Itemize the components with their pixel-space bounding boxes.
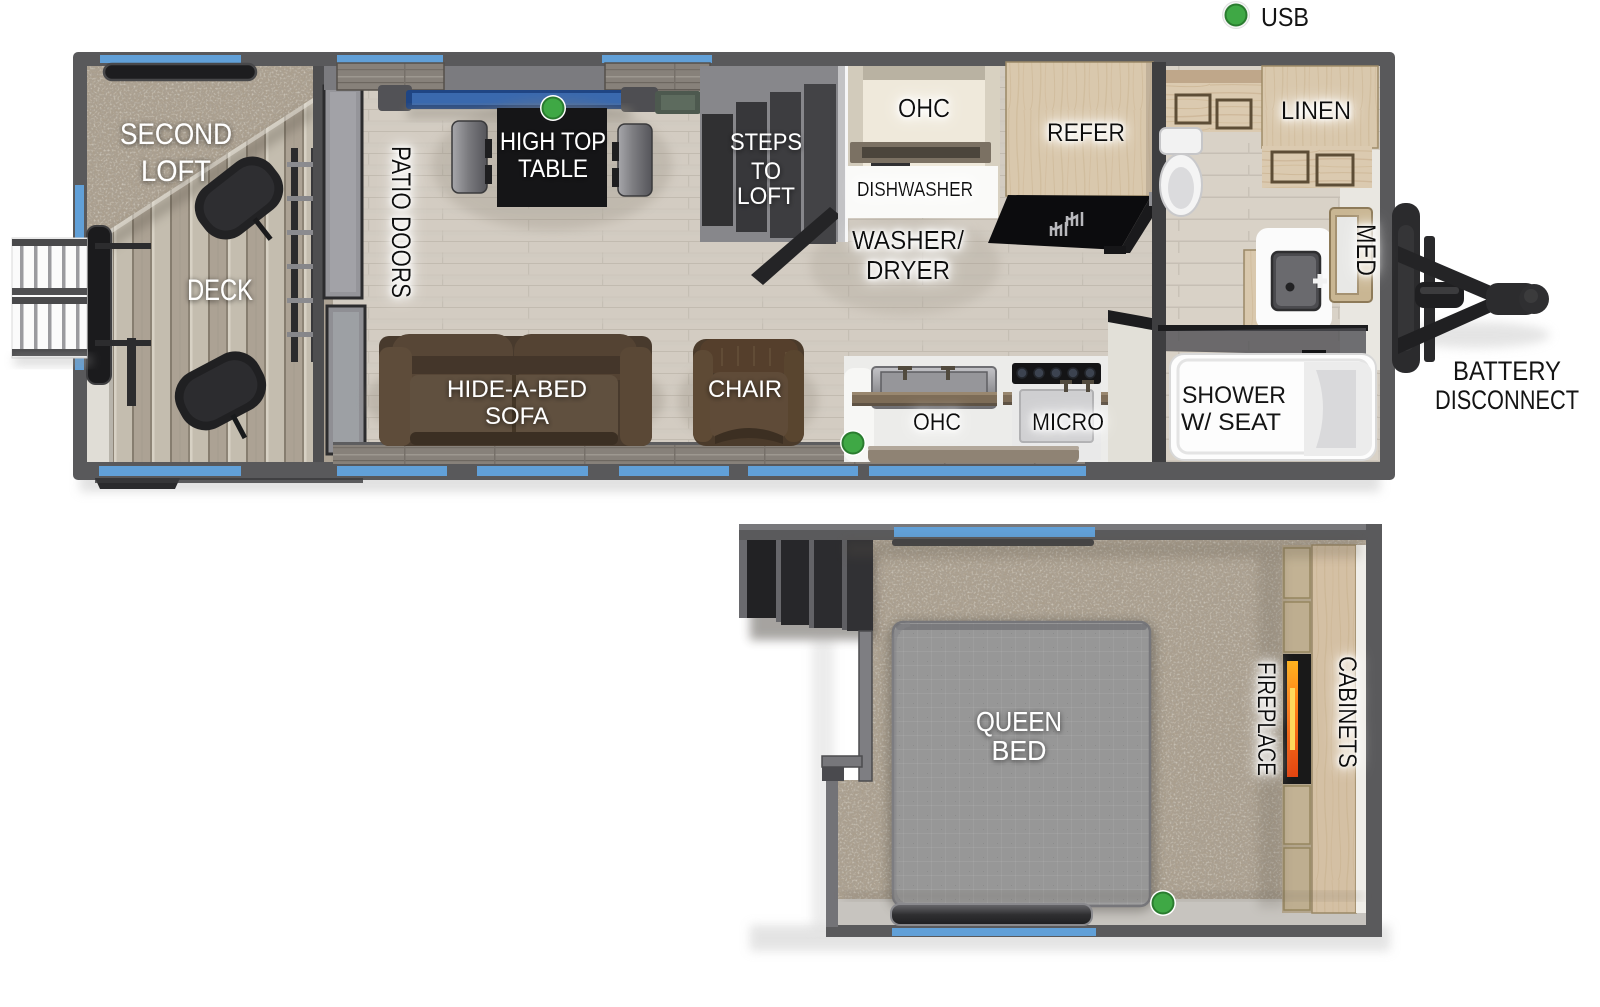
svg-text:SECOND: SECOND <box>120 118 232 151</box>
svg-text:BED: BED <box>992 735 1047 766</box>
svg-text:CABINETS: CABINETS <box>1333 656 1361 768</box>
svg-text:OHC: OHC <box>913 409 961 436</box>
svg-text:DISCONNECT: DISCONNECT <box>1435 385 1579 415</box>
svg-text:HIGH TOP: HIGH TOP <box>500 128 606 156</box>
svg-text:LOFT: LOFT <box>141 155 211 188</box>
svg-text:STEPS: STEPS <box>730 129 802 156</box>
svg-text:WASHER/: WASHER/ <box>852 225 965 255</box>
svg-text:HIDE-A-BED: HIDE-A-BED <box>447 376 587 403</box>
svg-text:QUEEN: QUEEN <box>976 706 1062 737</box>
svg-text:DECK: DECK <box>187 274 253 307</box>
svg-text:OHC: OHC <box>898 93 950 123</box>
svg-text:DRYER: DRYER <box>866 255 950 285</box>
svg-text:USB: USB <box>1261 2 1309 32</box>
svg-text:PATIO DOORS: PATIO DOORS <box>386 146 416 298</box>
svg-text:MED: MED <box>1351 224 1381 276</box>
svg-text:W/ SEAT: W/ SEAT <box>1181 409 1281 436</box>
svg-text:SHOWER: SHOWER <box>1182 382 1286 409</box>
svg-text:REFER: REFER <box>1047 119 1125 147</box>
svg-text:TO: TO <box>751 158 781 185</box>
svg-text:MICRO: MICRO <box>1032 409 1104 436</box>
svg-text:LINEN: LINEN <box>1281 97 1351 125</box>
svg-text:DISHWASHER: DISHWASHER <box>857 179 973 201</box>
svg-text:BATTERY: BATTERY <box>1453 356 1561 386</box>
svg-text:TABLE: TABLE <box>518 155 588 183</box>
svg-text:CHAIR: CHAIR <box>708 376 782 403</box>
svg-text:SOFA: SOFA <box>485 403 549 430</box>
svg-text:FIREPLACE: FIREPLACE <box>1252 662 1280 776</box>
svg-text:LOFT: LOFT <box>737 183 795 210</box>
